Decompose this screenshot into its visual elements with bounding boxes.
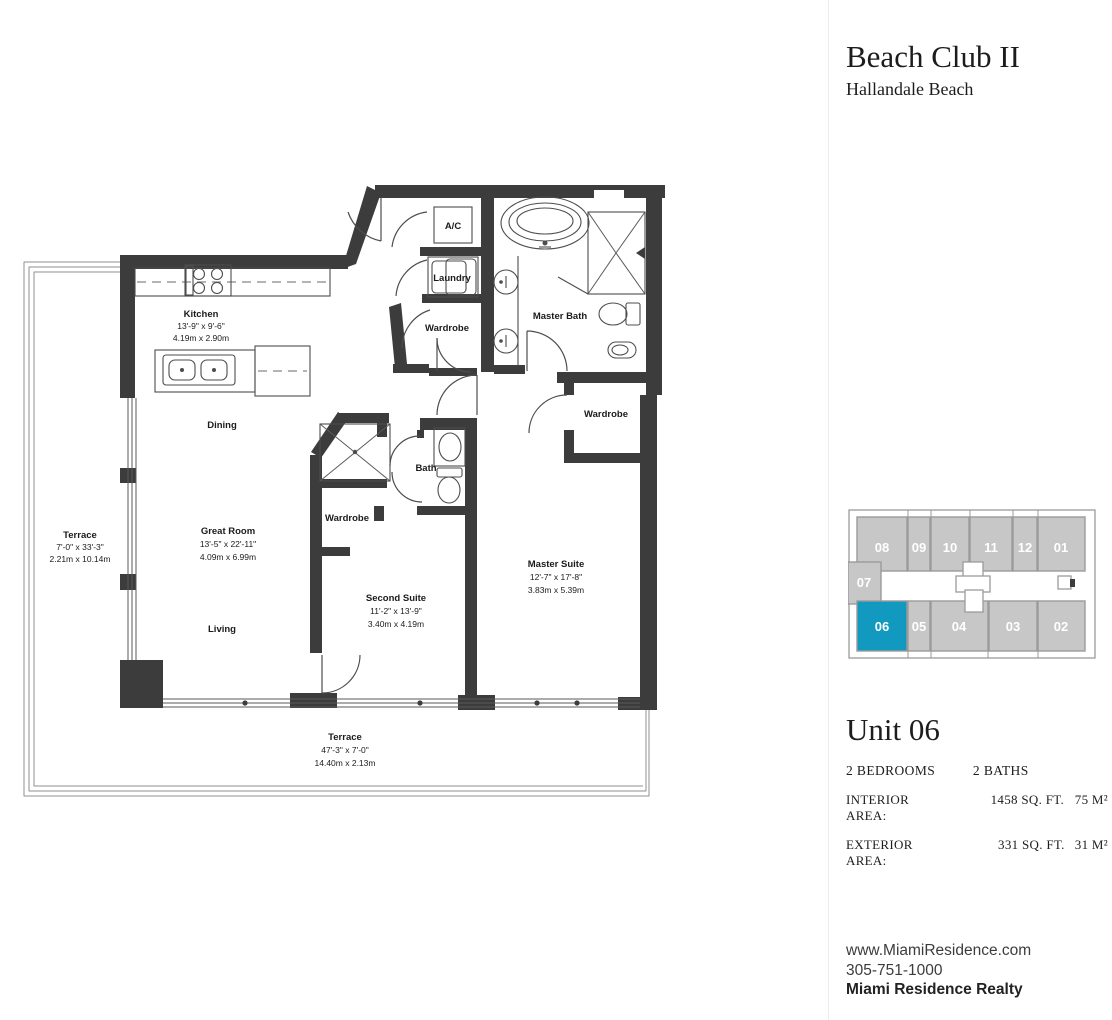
keyplan-label-09: 09 [912,540,926,555]
ac-label: A/C [445,221,462,232]
interior-area-m2: 75 M² [1064,792,1108,824]
unit-info: Unit 06 2 BEDROOMS 2 BATHS INTERIOR AREA… [846,712,1108,869]
keyplan-label-06: 06 [875,619,889,634]
svg-text:13'-5" x 22'-11": 13'-5" x 22'-11" [200,539,256,549]
sink-basin [439,433,461,461]
svg-text:4.09m x 6.99m: 4.09m x 6.99m [200,552,256,562]
door-swings [322,197,567,693]
bath-label: Bath [415,463,436,474]
wardrobe-second-label: Wardrobe [325,513,369,524]
kitchen-fixtures [135,265,330,396]
keyplan-label-11: 11 [984,540,998,555]
toilet [438,477,460,503]
flyer-page: Kitchen 13'-9" x 9'-6" 4.19m x 2.90m Din… [0,0,1112,1020]
kitchen-sink [163,355,235,385]
svg-text:4.19m x 2.90m: 4.19m x 2.90m [173,333,229,343]
terrace-bottom-label: Terrace [328,732,362,743]
wardrobe-hall-label: Wardrobe [425,323,469,334]
keyplan-label-04: 04 [952,619,967,634]
dining-label: Dining [207,420,237,431]
keyplan-label-12: 12 [1018,540,1032,555]
second-suite-label: Second Suite [366,593,426,604]
contact-block: www.MiamiResidence.com 305-751-1000 Miam… [846,941,1031,1000]
baths-count: 2 BATHS [973,763,1029,778]
bedrooms-count: 2 BEDROOMS [846,763,935,778]
master-bath-label: Master Bath [533,311,588,322]
keyplan-label-07: 07 [857,575,871,590]
master-suite-label: Master Suite [528,559,585,570]
svg-text:2.21m x 10.14m: 2.21m x 10.14m [50,554,111,564]
toilet [599,303,627,325]
svg-text:47'-3" x 7'-0": 47'-3" x 7'-0" [321,745,369,755]
exterior-area-m2: 31 M² [1065,837,1108,869]
contact-company: Miami Residence Realty [846,980,1031,1000]
keyplan-label-08: 08 [875,540,889,555]
exterior-area-sqft: 331 SQ. FT. [954,837,1064,869]
great-room-label: Great Room [201,526,255,537]
keyplan-label-02: 02 [1054,619,1068,634]
kitchen-label: Kitchen [184,309,219,320]
svg-text:3.40m x 4.19m: 3.40m x 4.19m [368,619,424,629]
exterior-area-label: EXTERIOR AREA: [846,837,954,869]
svg-text:7'-0" x 33'-3": 7'-0" x 33'-3" [56,542,104,552]
keyplan-label-10: 10 [943,540,957,555]
svg-text:13'-9" x 9'-6": 13'-9" x 9'-6" [177,321,225,331]
unit-title: Unit 06 [846,712,1108,748]
exterior-area-row: EXTERIOR AREA: 331 SQ. FT. 31 M² [846,837,1108,869]
interior-area-sqft: 1458 SQ. FT. [952,792,1064,824]
walls [120,185,665,710]
svg-text:11'-2" x 13'-9": 11'-2" x 13'-9" [370,606,422,616]
second-bath-fixtures [320,424,465,503]
keyplan-label-01: 01 [1054,540,1068,555]
stove [185,265,231,296]
building-subtitle: Hallandale Beach [846,78,1020,100]
terrace-left-label: Terrace [63,530,97,541]
wardrobe-master-label: Wardrobe [584,409,628,420]
keyplan-label-05: 05 [912,619,926,634]
building-title: Beach Club II [846,40,1020,74]
keyplan: 08 09 10 11 12 01 07 06 05 04 03 02 [848,504,1098,664]
shower-head [636,247,645,259]
laundry-label: Laundry [433,273,471,284]
svg-text:14.40m x 2.13m: 14.40m x 2.13m [315,758,376,768]
floorplan-drawing: Kitchen 13'-9" x 9'-6" 4.19m x 2.90m Din… [0,170,840,830]
interior-area-row: INTERIOR AREA: 1458 SQ. FT. 75 M² [846,792,1108,824]
contact-phone: 305-751-1000 [846,961,1031,981]
living-label: Living [208,624,236,635]
brand-header: Beach Club II Hallandale Beach [846,40,1020,100]
beds-baths-row: 2 BEDROOMS 2 BATHS [846,763,1108,779]
keyplan-label-03: 03 [1006,619,1020,634]
contact-website: www.MiamiResidence.com [846,941,1031,961]
master-bath-fixtures [494,197,645,366]
svg-text:3.83m x 5.39m: 3.83m x 5.39m [528,585,584,595]
svg-text:12'-7" x 17'-8": 12'-7" x 17'-8" [530,572,582,582]
interior-area-label: INTERIOR AREA: [846,792,952,824]
